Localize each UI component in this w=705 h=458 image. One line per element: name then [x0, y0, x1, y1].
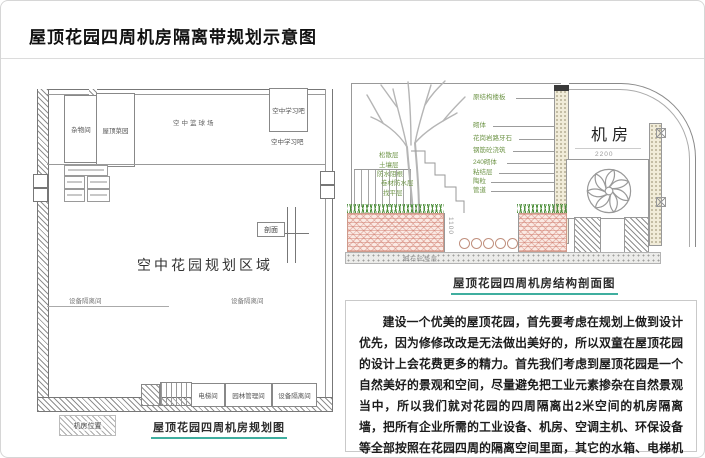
plan-wall-right: [325, 89, 333, 409]
description-text: 建设一个优美的屋顶花园，首先要考虑在规划上做到设计优先，因为修修改改是无法做出美…: [359, 312, 683, 458]
layer-callout: 找平层: [383, 187, 403, 197]
wall-niche: [320, 185, 335, 199]
machine-room-label: 机房: [591, 121, 633, 145]
legend-label: 机房位置: [73, 421, 103, 431]
section-caption: 屋顶花园四周机房结构剖面图: [451, 275, 618, 295]
wall-niche: [33, 188, 48, 202]
room-roof-veg: 屋顶菜园: [96, 93, 135, 167]
iso-left-line: [47, 306, 169, 307]
plan-wall-left: [37, 89, 49, 409]
room-iso-bottom-label: 设备隔离间: [278, 390, 311, 400]
fan-icon: [585, 167, 633, 215]
section-view: 松散层 土壤层 防水阻根 卷材防水层 找平层 原结构楼板 砌体 花岗岩路牙石 钢…: [341, 71, 701, 297]
room-elevator: 电梯间: [191, 383, 225, 407]
room-court-label: 空中篮球场: [173, 117, 216, 127]
iso-left-label: 设备隔离间: [69, 295, 102, 305]
section-cut-line: [287, 207, 288, 263]
layer-callout: 砌体: [473, 119, 486, 129]
grass-graphic: [517, 204, 567, 213]
room-iso-bottom: 设备隔离间: [272, 383, 317, 407]
slab-label: 细石砼垫层: [403, 254, 438, 263]
section-mark-box: 剖面: [257, 222, 285, 237]
layer-callout: 240砌体: [473, 156, 497, 166]
main-area-label: 空中花园规划区域: [137, 255, 273, 275]
anchor-icon: [656, 197, 666, 207]
support-column: [624, 217, 649, 254]
room-study-bottom-label: 空中学习吧: [271, 136, 304, 146]
leader-line: [491, 191, 554, 192]
section-cut-line: [295, 207, 296, 263]
concrete-slab: [345, 252, 661, 264]
room-storage: 杂物间: [64, 95, 98, 163]
room-study-top-label: 空中学习吧: [272, 105, 305, 115]
plan-caption: 屋顶花园四周机房规划图: [151, 419, 287, 439]
stairs-icon: [160, 382, 192, 406]
page-title: 屋顶花园四周机房隔离带规划示意图: [29, 23, 317, 48]
leader-line: [519, 139, 554, 140]
layer-callout: 花岗岩路牙石: [473, 132, 512, 142]
room-storage-label: 杂物间: [71, 124, 91, 134]
room-elevator-label: 电梯间: [198, 390, 218, 400]
leader-line: [499, 173, 554, 174]
room-garden-office: 园林管理间: [225, 383, 272, 407]
layer-callout: 钢筋砼浇筑: [473, 144, 506, 154]
dim-line: [575, 148, 641, 149]
room-roof-veg-label: 屋顶菜园: [103, 125, 129, 135]
room-study-top: 空中学习吧: [269, 88, 308, 132]
support-column: [574, 217, 601, 254]
leader-line: [513, 151, 554, 152]
equipment-cell: [87, 189, 110, 202]
layer-callout: 松散层: [379, 149, 399, 159]
leader-line: [507, 163, 554, 164]
leader-line: [516, 98, 554, 99]
wall-niche: [33, 174, 48, 188]
soil-bed: [517, 213, 567, 252]
wall-niche: [320, 171, 335, 185]
equipment-cell: [87, 176, 110, 189]
layer-callout: 卷材防水层: [381, 177, 414, 187]
leader-line: [493, 126, 554, 127]
schematic-page: 屋顶花园四周机房隔离带规划示意图 杂物间 屋顶菜园 空中篮球场 空中学习吧 空中…: [0, 0, 705, 458]
machine-room-wall-strip: [649, 123, 662, 246]
iso-right-label: 设备隔离间: [231, 295, 264, 305]
wall-cap: [554, 85, 569, 91]
equipment-cell: [64, 176, 85, 189]
anchor-icon: [656, 128, 666, 138]
grass-graphic: [347, 204, 444, 213]
plan-caption-wrap: 屋顶花园四周机房规划图: [151, 418, 287, 439]
section-left-line: [351, 83, 352, 216]
width-dimension: 2200: [595, 151, 613, 158]
plan-view: 杂物间 屋顶菜园 空中篮球场 空中学习吧 空中学习吧 设备隔离间 设备隔离间 空…: [33, 79, 338, 447]
header-divider: [1, 58, 704, 59]
section-caption-wrap: 屋顶花园四周机房结构剖面图: [451, 274, 618, 295]
stairs-hatch: [141, 384, 160, 406]
depth-dimension: 1100: [447, 217, 454, 235]
equipment-cell: [64, 189, 85, 202]
equipment-cell: [64, 165, 108, 176]
machine-room-hatch-swatch: 机房位置: [59, 415, 116, 436]
layer-callout: 原结构楼板: [473, 91, 506, 101]
soil-bed: [347, 213, 444, 252]
leader-line: [491, 182, 554, 183]
layer-callout: 管道: [473, 184, 486, 194]
section-mark-label: 剖面: [264, 225, 278, 235]
description-panel: 建设一个优美的屋顶花园，首先要考虑在规划上做到设计优先，因为修修改改是无法做出美…: [345, 300, 697, 452]
room-garden-office-label: 园林管理间: [232, 390, 265, 400]
